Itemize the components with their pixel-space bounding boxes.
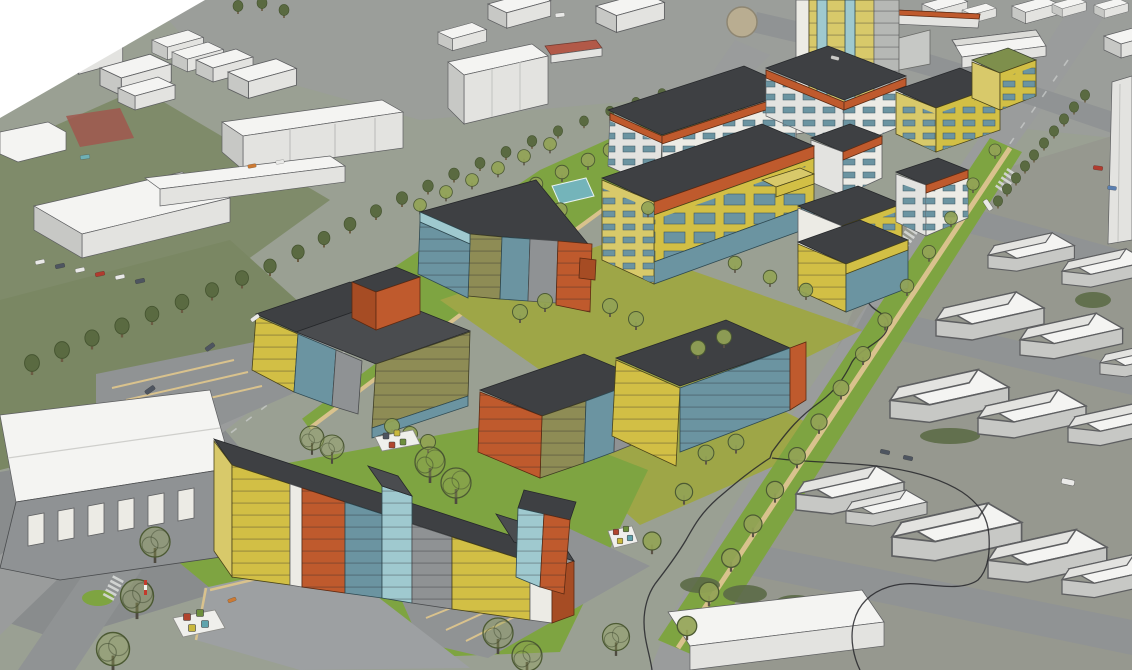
- facade: [332, 350, 362, 414]
- facade: [584, 390, 616, 463]
- striped-pole-marker: [144, 580, 147, 595]
- scene-canvas: [0, 0, 1132, 670]
- tree: [512, 641, 542, 670]
- 3d-viewport[interactable]: [0, 0, 1132, 670]
- car: [555, 12, 565, 17]
- facade: [500, 237, 530, 301]
- stair-core: [290, 484, 302, 587]
- facade: [790, 342, 806, 410]
- left-canopy-warehouse: [0, 390, 232, 580]
- facade-bay: [579, 258, 596, 280]
- roundabout: [727, 7, 757, 37]
- right-edge-building: [1108, 76, 1132, 244]
